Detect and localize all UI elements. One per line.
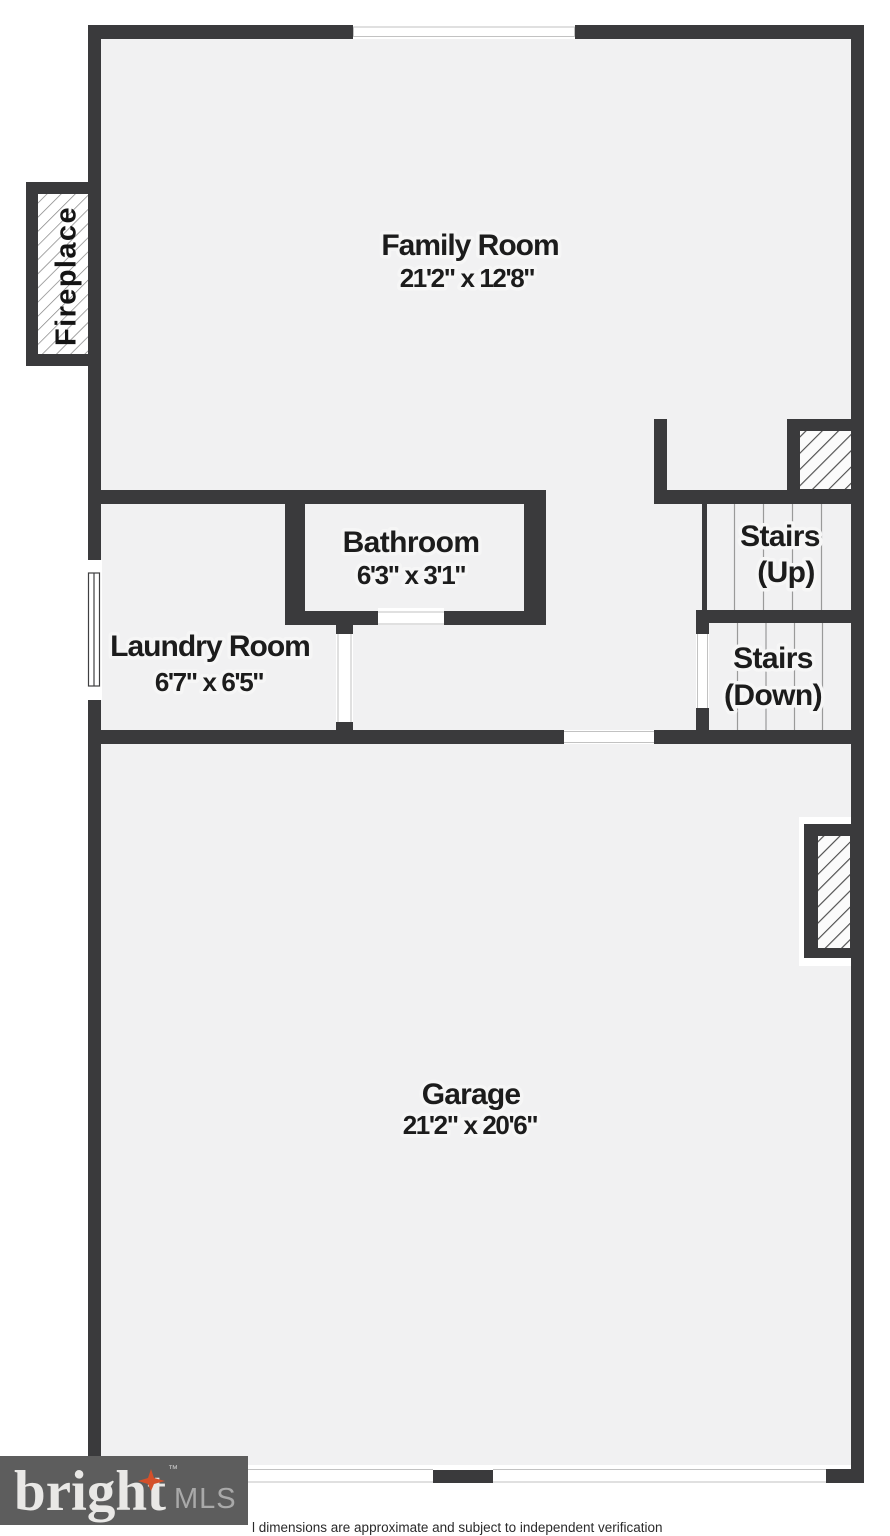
svg-text:Bathroom: Bathroom — [343, 526, 480, 559]
svg-text:bright: bright — [14, 1460, 166, 1523]
svg-text:Stairs: Stairs — [740, 520, 820, 553]
svg-text:21'2" x 12'8": 21'2" x 12'8" — [400, 263, 535, 293]
svg-text:l dimensions are approximate a: l dimensions are approximate and subject… — [252, 1520, 663, 1535]
svg-text:Family Room: Family Room — [381, 229, 558, 262]
svg-text:Fireplace: Fireplace — [51, 206, 83, 346]
svg-text:21'2" x 20'6": 21'2" x 20'6" — [403, 1110, 538, 1140]
svg-text:Garage: Garage — [422, 1078, 521, 1111]
svg-text:MLS: MLS — [174, 1483, 237, 1515]
svg-text:Laundry Room: Laundry Room — [110, 630, 310, 663]
svg-text:6'7" x 6'5": 6'7" x 6'5" — [155, 667, 263, 697]
svg-text:6'3" x 3'1": 6'3" x 3'1" — [357, 560, 465, 590]
svg-text:™: ™ — [168, 1464, 178, 1475]
svg-text:(Up): (Up) — [757, 556, 815, 589]
svg-text:(Down): (Down) — [724, 679, 822, 712]
svg-text:Stairs: Stairs — [733, 642, 813, 675]
